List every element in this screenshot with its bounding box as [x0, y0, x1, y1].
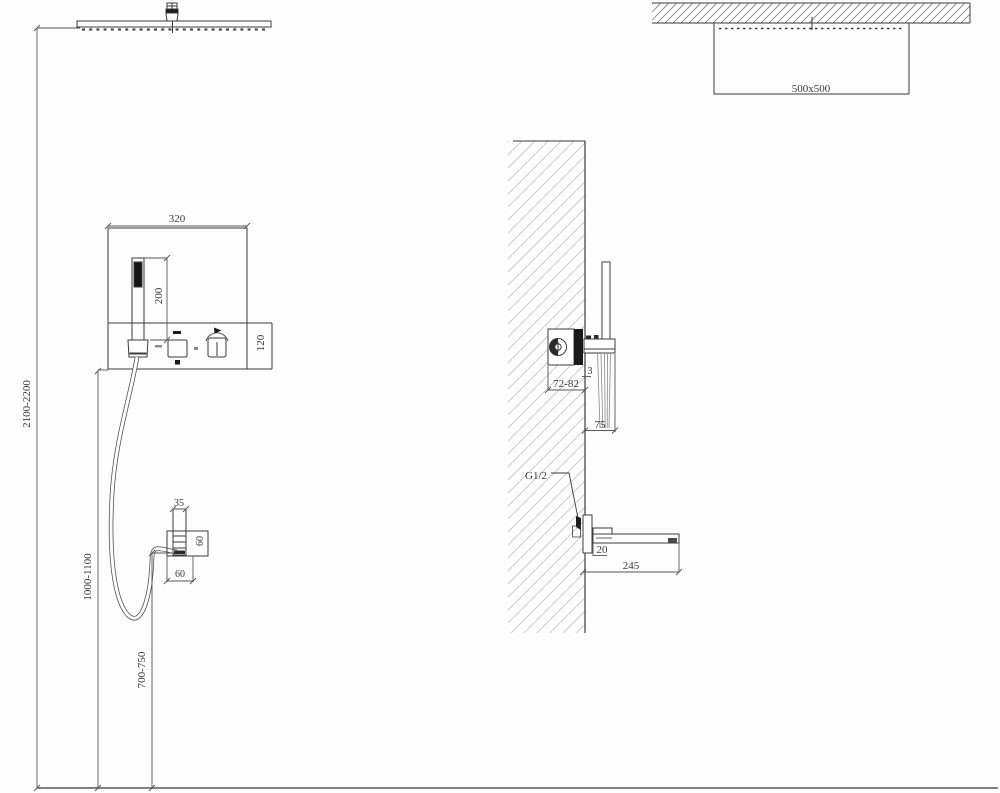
spout-tip — [668, 538, 677, 543]
spray-head-side — [598, 353, 611, 428]
dim-valve-height-label: 1000-1100 — [82, 553, 94, 601]
dim-valve-height — [95, 368, 108, 791]
installation-diagram: 320 200 120 2100-2200 1000-1100 700-750 … — [0, 0, 1000, 793]
diagram-canvas: 320 200 120 2100-2200 1000-1100 700-750 … — [0, 0, 1000, 793]
rain-shower-head-front — [77, 21, 271, 30]
temperature-knob — [206, 328, 228, 358]
button-top-mark — [173, 331, 181, 334]
panel-controls — [155, 328, 228, 365]
dim-head-height-label: 2100-2200 — [21, 380, 33, 428]
plus-mark — [194, 347, 198, 350]
dim-spout-length-label: 245 — [623, 560, 640, 572]
side-view — [508, 141, 679, 633]
front-view — [77, 3, 272, 618]
dim-head-size-label: 500x500 — [792, 83, 831, 95]
diverter-button — [168, 340, 187, 357]
dim-handshower-offset-label: 75 — [595, 419, 607, 431]
ceiling-section — [652, 3, 970, 23]
hose-outlet-elbow — [167, 509, 208, 556]
handheld-shower-side — [584, 262, 615, 428]
dim-outlet-tube-width-label: 35 — [174, 498, 184, 509]
dim-head-height — [34, 25, 80, 791]
dim-outlet-height-label: 700-750 — [136, 651, 148, 688]
minus-mark — [155, 345, 162, 348]
dim-spout-height-label: 20 — [597, 544, 609, 556]
thread-label: G1/2 — [525, 470, 547, 482]
dim-handshower-length-label: 200 — [153, 287, 165, 304]
dim-outlet-box-height-label: 60 — [195, 536, 206, 546]
dim-plate-gap-label: 3 — [588, 366, 593, 377]
dim-valve-plate-height-label: 120 — [255, 334, 267, 351]
dim-outlet-height — [149, 550, 173, 791]
dim-valve-depth-label: 72-82 — [553, 378, 579, 390]
dim-panel-width-label: 320 — [169, 213, 186, 225]
button-bottom-mark — [175, 360, 180, 365]
dim-outlet-box-width-label: 60 — [175, 569, 185, 580]
valve-trim-plate — [574, 329, 583, 365]
handheld-shower-front — [128, 258, 148, 357]
mixer-valve-side — [548, 329, 583, 365]
top-view — [652, 3, 970, 94]
dimension-labels: 320 200 120 2100-2200 1000-1100 700-750 … — [21, 83, 831, 688]
handheld-spray-face — [134, 262, 142, 287]
